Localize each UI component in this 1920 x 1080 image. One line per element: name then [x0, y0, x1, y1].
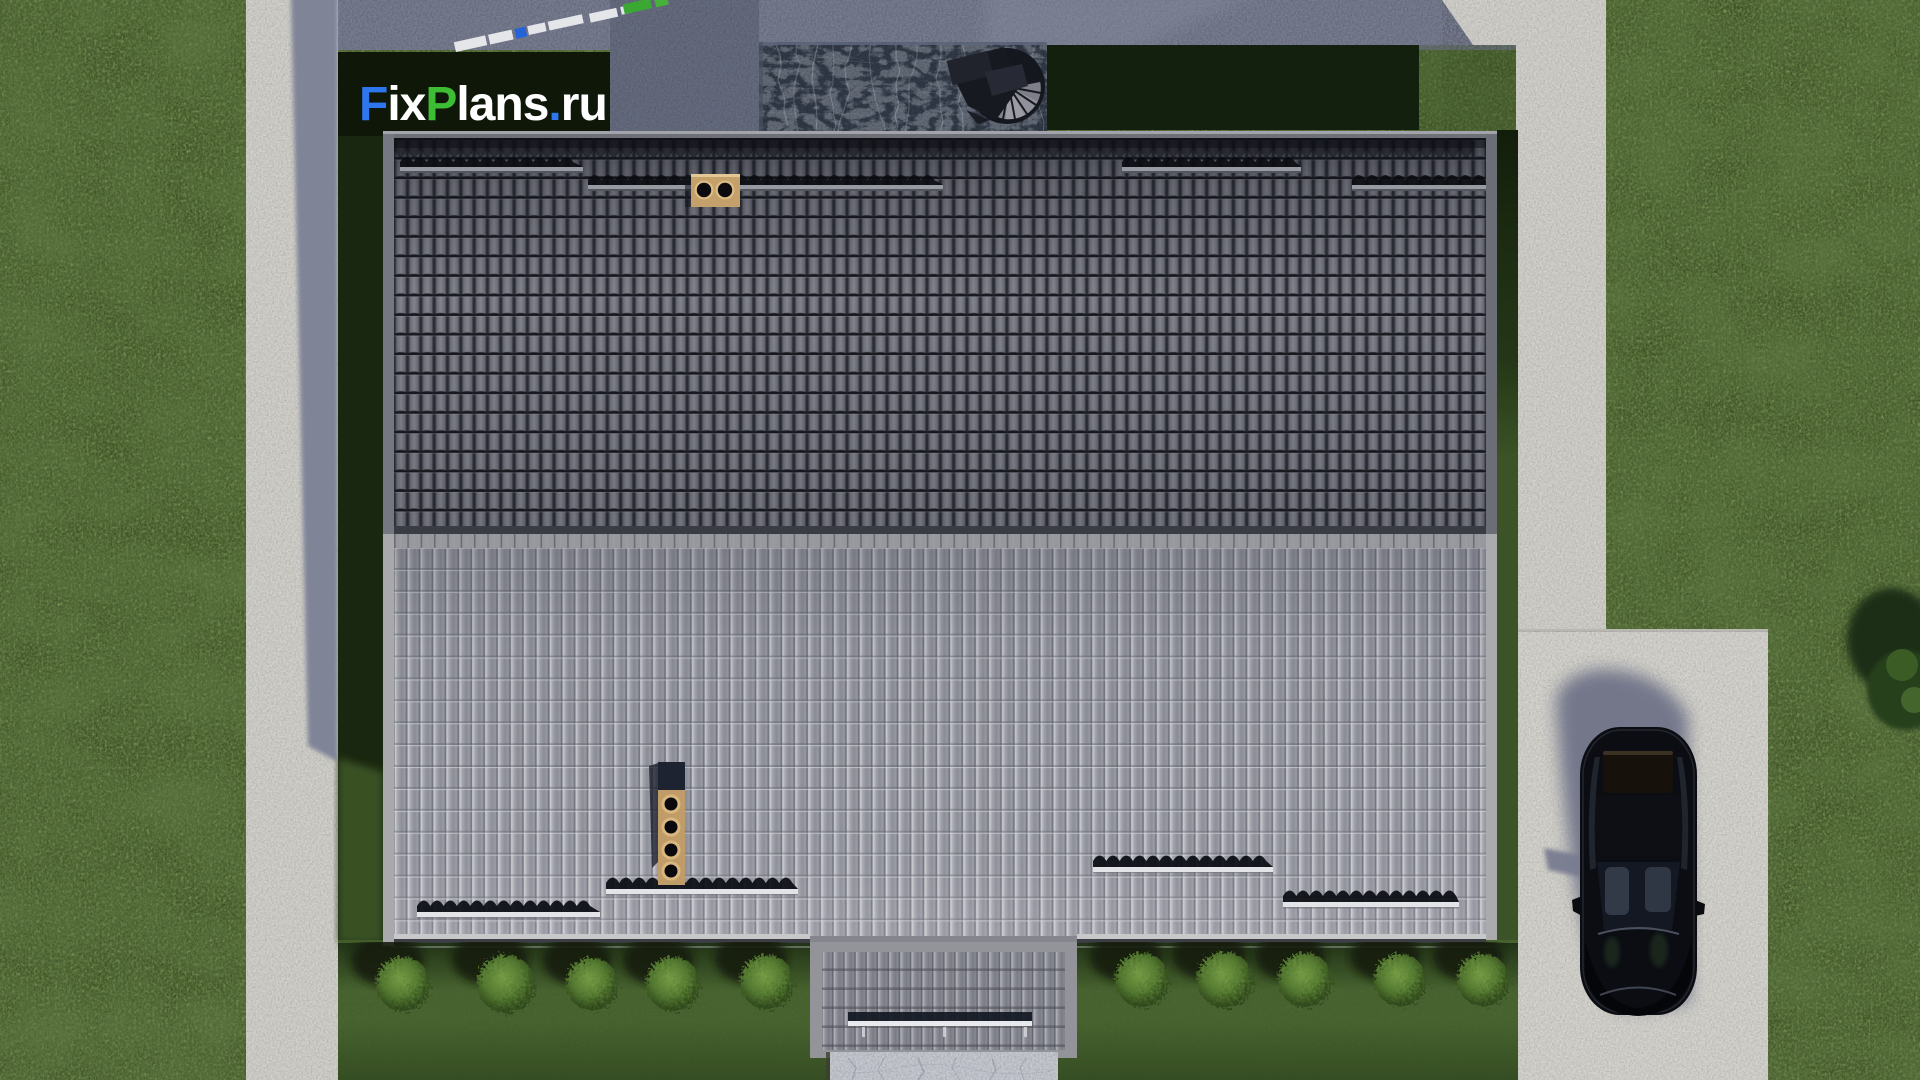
svg-text:FixPlans.ru: FixPlans.ru: [359, 78, 607, 131]
